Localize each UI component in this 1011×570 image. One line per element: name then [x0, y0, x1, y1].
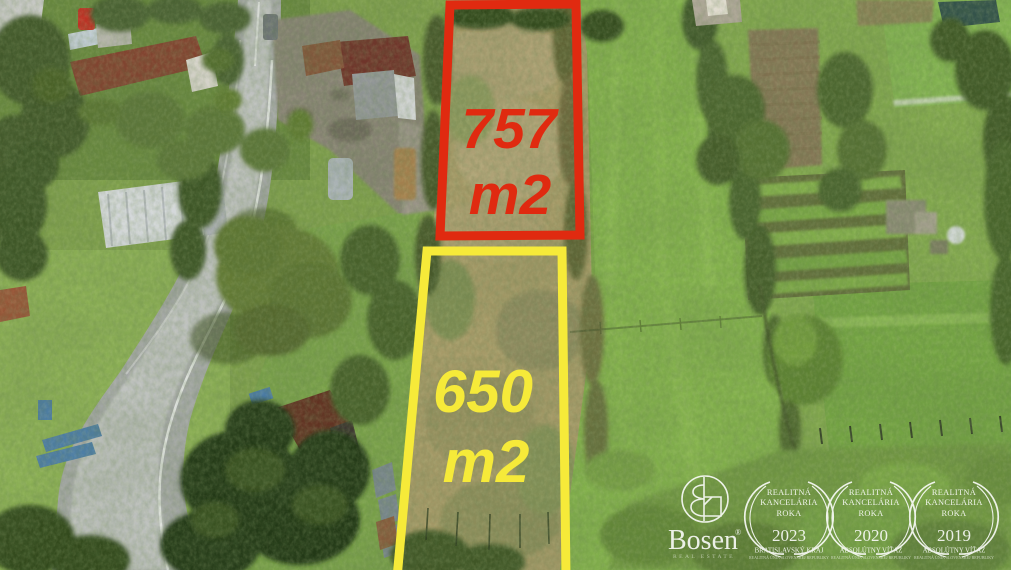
svg-text:2023: 2023 — [772, 526, 806, 545]
svg-text:REALITNÁ: REALITNÁ — [767, 487, 811, 497]
svg-text:ROKA: ROKA — [859, 509, 884, 518]
svg-text:KANCELÁRIA: KANCELÁRIA — [842, 497, 899, 507]
svg-text:®: ® — [735, 528, 741, 537]
svg-text:650: 650 — [433, 358, 533, 425]
svg-text:m2: m2 — [443, 428, 530, 495]
svg-text:BRATISLAVSKÝ KRAJ: BRATISLAVSKÝ KRAJ — [755, 547, 824, 555]
svg-text:m2: m2 — [469, 163, 552, 227]
svg-text:Bosen: Bosen — [668, 525, 738, 556]
svg-text:REALITNÁ ÚNIA SLOVENSKEJ REPUB: REALITNÁ ÚNIA SLOVENSKEJ REPUBLIKY — [914, 555, 994, 560]
svg-text:KANCELÁRIA: KANCELÁRIA — [925, 497, 982, 507]
svg-text:REALITNÁ ÚNIA SLOVENSKEJ REPUB: REALITNÁ ÚNIA SLOVENSKEJ REPUBLIKY — [831, 555, 911, 560]
svg-text:ROKA: ROKA — [942, 509, 967, 518]
svg-text:ABSOLÚTNY VÍŤAZ: ABSOLÚTNY VÍŤAZ — [840, 547, 903, 555]
svg-text:KANCELÁRIA: KANCELÁRIA — [760, 497, 817, 507]
svg-text:ROKA: ROKA — [777, 509, 802, 518]
svg-text:REAL ESTATE: REAL ESTATE — [673, 554, 735, 560]
svg-text:REALITNÁ ÚNIA SLOVENSKEJ REPUB: REALITNÁ ÚNIA SLOVENSKEJ REPUBLIKY — [749, 555, 829, 560]
svg-text:ABSOLÚTNY VÍŤAZ: ABSOLÚTNY VÍŤAZ — [923, 547, 986, 555]
svg-text:757: 757 — [461, 97, 558, 161]
svg-text:REALITNÁ: REALITNÁ — [932, 487, 976, 497]
svg-text:2020: 2020 — [854, 526, 888, 545]
svg-text:2019: 2019 — [937, 526, 971, 545]
svg-text:REALITNÁ: REALITNÁ — [849, 487, 893, 497]
